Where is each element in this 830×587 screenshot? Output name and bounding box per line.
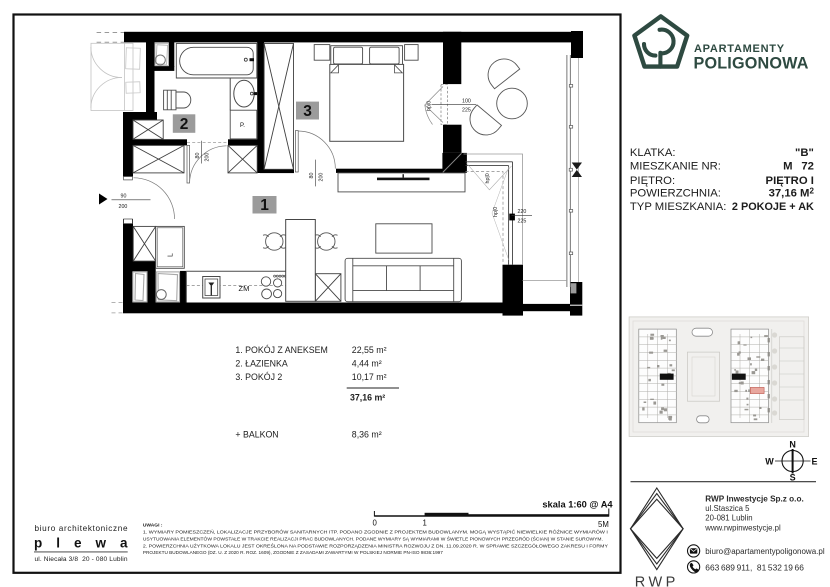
svg-text:PIĘTRO:: PIĘTRO: (630, 175, 675, 187)
svg-text:1: 1 (260, 197, 269, 214)
svg-text:hp|0: hp|0 (485, 173, 491, 183)
svg-text:USYTUOWANIA ELEMENTÓW POWSTAŁE: USYTUOWANIA ELEMENTÓW POWSTAŁE W TRAKCIE… (143, 534, 603, 541)
svg-text:2 POKOJE + AK: 2 POKOJE + AK (732, 201, 815, 213)
svg-text:hp|0: hp|0 (493, 207, 499, 217)
svg-text:hp|0: hp|0 (427, 101, 433, 111)
svg-text:RWP Inwestycje Sp.z o.o.: RWP Inwestycje Sp.z o.o. (705, 494, 803, 503)
svg-text:200: 200 (205, 153, 211, 162)
svg-text:3. POKÓJ 2: 3. POKÓJ 2 (235, 372, 282, 382)
svg-text:220: 220 (518, 209, 527, 215)
svg-text:200: 200 (319, 173, 325, 182)
svg-text:1. WYMIARY POMIESZCZEŃ, LOKALI: 1. WYMIARY POMIESZCZEŃ, LOKALIZACJE PRZY… (143, 529, 608, 535)
svg-text:TYP MIESZKANIA:: TYP MIESZKANIA: (630, 201, 726, 213)
svg-text:4,44 m²: 4,44 m² (352, 358, 382, 368)
svg-text:+ BALKON: + BALKON (235, 429, 278, 439)
svg-text:E: E (811, 456, 817, 466)
svg-text:100: 100 (462, 99, 471, 105)
svg-text:3: 3 (303, 103, 312, 120)
svg-text:KLATKA:: KLATKA: (630, 147, 676, 159)
svg-text:200: 200 (119, 204, 128, 210)
svg-text:0: 0 (373, 519, 378, 528)
svg-text:225: 225 (518, 219, 527, 225)
svg-text:90: 90 (121, 194, 127, 200)
svg-text:ZM: ZM (239, 284, 250, 293)
svg-text:20-081 Lublin: 20-081 Lublin (705, 514, 752, 523)
svg-text:biuro@apartamentypoligonowa.pl: biuro@apartamentypoligonowa.pl (705, 547, 825, 556)
svg-text:PROJEKTU BUDOWLANEGO (DZ. U. Z: PROJEKTU BUDOWLANEGO (DZ. U. Z 2020 R. R… (143, 550, 443, 555)
svg-text:POWIERZCHNIA:: POWIERZCHNIA: (630, 187, 721, 199)
svg-text:22,55 m²: 22,55 m² (352, 345, 387, 355)
svg-text:UWAGI :: UWAGI : (143, 522, 163, 528)
svg-text:RWP: RWP (635, 575, 679, 587)
svg-text:ul.Staszica 5: ul.Staszica 5 (705, 504, 750, 513)
svg-text:37,16 m²: 37,16 m² (350, 392, 385, 402)
svg-text:37,16 M2: 37,16 M2 (769, 186, 815, 199)
svg-text:1. POKÓJ Z ANEKSEM: 1. POKÓJ Z ANEKSEM (235, 345, 327, 355)
svg-text:biuro architektoniczne: biuro architektoniczne (35, 524, 128, 533)
svg-text:N: N (789, 439, 796, 449)
svg-text:2. POWIERZCHNIA UŻYTKOWA LOKAL: 2. POWIERZCHNIA UŻYTKOWA LOKALU JEST OKR… (143, 541, 609, 548)
svg-text:"B": "B" (795, 147, 814, 159)
svg-text:P.: P. (240, 123, 245, 129)
svg-text:2. ŁAZIENKA: 2. ŁAZIENKA (235, 358, 287, 368)
svg-text:ul. Niecała 3/8 20 - 080 Lubl: ul. Niecała 3/8 20 - 080 Lublin (35, 556, 128, 563)
svg-text:W: W (765, 456, 774, 466)
svg-text:8,36 m²: 8,36 m² (352, 429, 382, 439)
svg-text:80: 80 (195, 153, 201, 159)
svg-text:skala 1:60 @ A4: skala 1:60 @ A4 (542, 500, 613, 510)
svg-text:225: 225 (462, 108, 471, 114)
svg-text:1: 1 (423, 519, 427, 528)
svg-text:M 72: M 72 (783, 160, 814, 172)
svg-text:PIĘTRO I: PIĘTRO I (766, 175, 814, 187)
svg-text:10,17 m²: 10,17 m² (352, 372, 387, 382)
svg-text:MIESZKANIE NR:: MIESZKANIE NR: (630, 160, 721, 172)
svg-text:663 689 911, 81 532 19 66: 663 689 911, 81 532 19 66 (705, 562, 804, 572)
svg-text:80: 80 (309, 173, 315, 179)
svg-text:5M: 5M (598, 520, 609, 529)
svg-text:2: 2 (180, 116, 189, 133)
svg-text:p l e w a: p l e w a (34, 536, 128, 551)
svg-text:POLIGONOWA: POLIGONOWA (694, 54, 810, 72)
svg-text:S: S (790, 472, 796, 482)
svg-text:L: L (168, 253, 175, 257)
svg-text:www.rwpinwestycje.pl: www.rwpinwestycje.pl (704, 523, 781, 532)
